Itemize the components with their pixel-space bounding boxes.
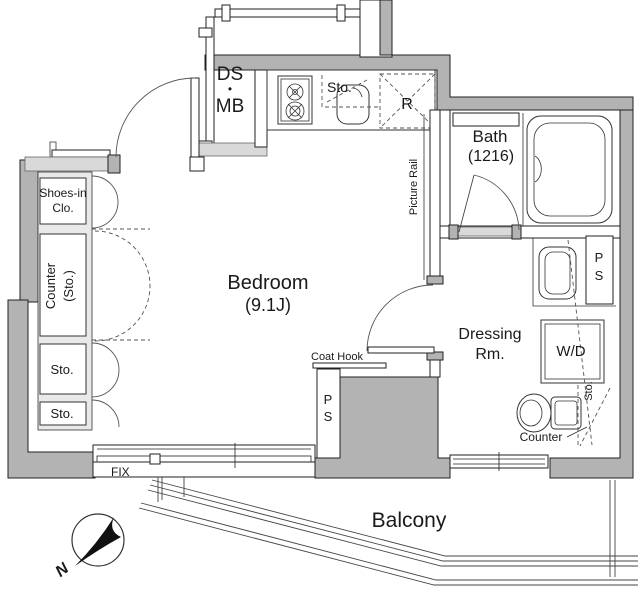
storage-2-label: Sto. bbox=[50, 406, 73, 421]
counter-storage-label-2: (Sto.) bbox=[61, 270, 76, 302]
entry-wall-sill bbox=[25, 157, 117, 171]
dressing-room-label-2: Rm. bbox=[475, 346, 504, 363]
coat-hook-label: Coat Hook bbox=[311, 351, 363, 363]
pipe-space-right-p: P bbox=[595, 250, 604, 265]
bedroom-label: Bedroom bbox=[227, 272, 308, 294]
shaft-label-mb: MB bbox=[216, 96, 245, 117]
kitchen-storage-label: Sto. bbox=[327, 79, 352, 95]
refrigerator-label: R bbox=[401, 96, 413, 113]
door-frame bbox=[427, 276, 443, 284]
storage-right-label: Sto. bbox=[583, 381, 595, 401]
storage-1-label: Sto. bbox=[50, 362, 73, 377]
bath-label: Bath bbox=[473, 127, 508, 146]
corridor-rail-post bbox=[337, 5, 345, 21]
bedroom-window-frame bbox=[93, 445, 315, 462]
bath-door-frame bbox=[449, 225, 458, 239]
floor-plan: DS • MB Sto. R Bath (1216) Picture Rail … bbox=[0, 0, 640, 600]
washbasin bbox=[539, 247, 576, 299]
corridor-wall-cap bbox=[199, 28, 212, 37]
wall-left-upper bbox=[20, 160, 38, 302]
coat-hook-rail bbox=[313, 363, 386, 368]
washer-dryer-label: W/D bbox=[556, 343, 585, 360]
bath-shelf bbox=[453, 113, 519, 126]
dressing-room-label-1: Dressing bbox=[458, 326, 521, 343]
bedroom-dressing-wall bbox=[430, 110, 440, 284]
bath-door-frame bbox=[512, 225, 521, 239]
corridor-rail bbox=[215, 9, 378, 17]
shoes-closet-label-1: Shoes-in bbox=[39, 186, 86, 200]
bedroom-size-label: (9.1J) bbox=[245, 295, 291, 315]
pipe-shaft-wall bbox=[380, 0, 392, 55]
pipe-space-bottom-p: P bbox=[324, 392, 333, 407]
entry-door-frame bbox=[108, 155, 120, 173]
bath-left-wall bbox=[440, 110, 450, 226]
bedroom-window-mullion bbox=[150, 454, 160, 464]
bathtub bbox=[527, 116, 612, 223]
pipe-space-bottom-s: S bbox=[324, 409, 333, 424]
counter-right-label: Counter bbox=[520, 430, 563, 444]
floor-plan-page: DS • MB Sto. R Bath (1216) Picture Rail … bbox=[0, 0, 640, 600]
entry-door-leaf bbox=[191, 78, 199, 157]
pipe-space-right-s: S bbox=[595, 268, 604, 283]
balcony-label: Balcony bbox=[372, 509, 447, 532]
bath-size-label: (1216) bbox=[468, 148, 514, 165]
kitchen-end-panel bbox=[255, 70, 267, 147]
picture-rail-label: Picture Rail bbox=[408, 159, 420, 215]
bath-door-sill bbox=[457, 227, 513, 236]
dressing-door-leaf bbox=[368, 347, 434, 353]
fix-window-label: FIX bbox=[111, 465, 130, 479]
shoes-closet-label-2: Clo. bbox=[52, 201, 73, 215]
shaft-label-dot: • bbox=[228, 82, 232, 96]
entry-step bbox=[52, 150, 110, 157]
corridor-rail-post bbox=[222, 5, 230, 21]
entry-door-frame bbox=[190, 157, 204, 171]
counter-storage-label-1: Counter bbox=[43, 262, 58, 309]
stove bbox=[278, 76, 312, 124]
